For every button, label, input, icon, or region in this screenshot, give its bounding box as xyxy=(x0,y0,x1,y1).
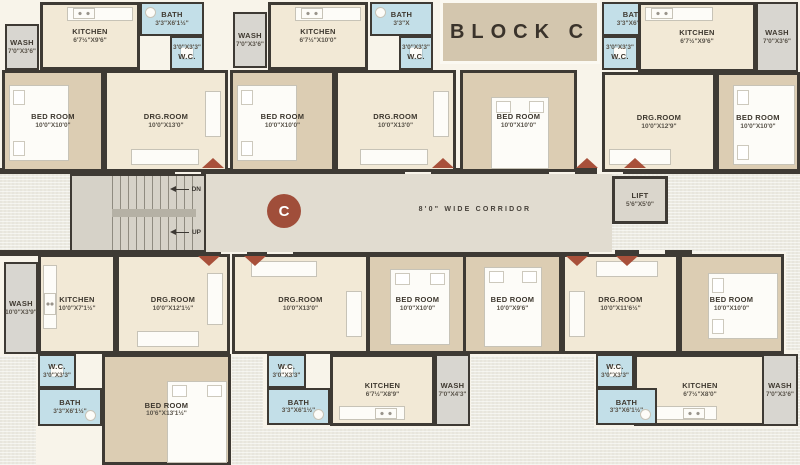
bed-icon xyxy=(491,97,549,169)
room-label: W.C. xyxy=(611,52,628,61)
room-label: W.C. xyxy=(178,52,195,61)
room-bedroom: BED ROOM10'0"X10'0" xyxy=(230,70,335,172)
room-dims: 10'0"X9'6" xyxy=(497,305,529,313)
room-drawing-room: DRG.ROOM10'0"X13'0" xyxy=(335,70,456,172)
room-label: BED ROOM xyxy=(491,295,535,304)
stair-down-indicator: DN xyxy=(172,186,201,193)
room-dims: 10'0"X12'9" xyxy=(641,123,676,131)
room-label: W.C. xyxy=(278,362,295,371)
left-arrow-icon xyxy=(172,232,189,233)
room-dims: 3'0"X3'3" xyxy=(173,44,201,52)
room-label: DRG.ROOM xyxy=(151,295,195,304)
door-marker-icon xyxy=(616,256,638,266)
up-label: UP xyxy=(192,229,201,236)
room-label: BED ROOM xyxy=(261,112,305,121)
room-dims: 3'3"X6'1½" xyxy=(282,407,315,415)
room-dims: 10'0"X13'0" xyxy=(283,305,318,313)
room-drawing-room: DRG.ROOM10'0"X13'0" xyxy=(104,70,228,172)
lift-room: LIFT5'6"X5'0" xyxy=(612,176,668,224)
room-label: BED ROOM xyxy=(736,113,780,122)
room-bath: BATH3'3"X6'1½" xyxy=(267,388,330,425)
room-label: KITCHEN xyxy=(679,28,714,37)
shower-icon xyxy=(375,7,386,18)
room-wc: W.C.3'0"X3'3" xyxy=(602,36,638,70)
room-dims: 10'0"X10'0" xyxy=(501,122,536,130)
sofa-icon xyxy=(433,91,449,137)
room-label: WASH xyxy=(768,381,792,390)
block-title-box: BLOCK C xyxy=(440,0,600,64)
room-label: W.C. xyxy=(48,362,65,371)
room-drawing-room: DRG.ROOM10'0"X11'6½" xyxy=(562,254,679,354)
stair-landing xyxy=(112,209,196,217)
room-label: BED ROOM xyxy=(145,401,189,410)
room-wash: WASH7'0"X3'6" xyxy=(233,12,267,68)
room-kitchen: KITCHEN6'7½"X9'6" xyxy=(638,2,756,72)
sofa-icon xyxy=(131,149,199,165)
room-dims: 3'0"X3'3" xyxy=(606,44,634,52)
left-arrow-icon xyxy=(172,189,189,190)
bed-icon xyxy=(167,381,227,463)
sofa-icon xyxy=(207,273,223,325)
down-label: DN xyxy=(192,186,201,193)
room-wc: W.C.3'0"X3'3" xyxy=(267,354,306,388)
sofa-icon xyxy=(137,331,199,347)
room-dims: 10'0"X10'0" xyxy=(400,305,435,313)
room-drawing-room: DRG.ROOM10'0"X13'0" xyxy=(232,254,369,354)
room-dims: 7'0"X4'3" xyxy=(438,391,466,399)
door-marker-icon xyxy=(566,256,588,266)
room-label: BED ROOM xyxy=(396,295,440,304)
room-bedroom: BED ROOM10'0"X10'0" xyxy=(460,70,577,172)
room-bedroom: BED ROOM10'0"X10'0" xyxy=(679,254,784,354)
room-label: DRG.ROOM xyxy=(144,112,188,121)
room-dims: 7'0"X3'6" xyxy=(236,41,264,49)
room-label: BATH xyxy=(161,10,182,19)
room-dims: 3'0"X3'3" xyxy=(43,372,71,380)
room-label: BED ROOM xyxy=(497,112,541,121)
room-bedroom: BED ROOM10'0"X9'6" xyxy=(463,254,562,354)
lift-dims: 5'6"X5'0" xyxy=(626,201,654,209)
stove-icon xyxy=(44,293,56,315)
block-title: BLOCK C xyxy=(450,21,590,44)
room-dims: 6'7½"X9'6" xyxy=(680,38,713,46)
room-dims: 10'0"X10'0" xyxy=(265,122,300,130)
room-dims: 3'0"X3'3" xyxy=(402,44,430,52)
room-wc: W.C.3'0"X3'3" xyxy=(170,36,204,70)
room-dims: 7'0"X3'6" xyxy=(763,38,791,46)
room-dims: 3'3"X6'1½" xyxy=(610,407,643,415)
lift-label: LIFT xyxy=(631,191,648,200)
sofa-icon xyxy=(569,291,585,337)
room-wc: W.C.3'0"X3'3" xyxy=(596,354,634,388)
room-label: BED ROOM xyxy=(710,295,754,304)
room-dims: 10'0"X10'0" xyxy=(35,122,70,130)
door-marker-icon xyxy=(576,158,598,168)
room-label: W.C. xyxy=(407,52,424,61)
room-dims: 10'0"X11'6½" xyxy=(600,305,640,313)
stove-icon xyxy=(375,408,397,419)
sofa-icon xyxy=(346,291,362,337)
room-dims: 3'3"X6'1½" xyxy=(53,408,86,416)
room-label: BATH xyxy=(59,398,80,407)
room-wc: W.C.3'0"X3'3" xyxy=(38,354,76,388)
room-bedroom: BED ROOM10'0"X10'0" xyxy=(716,72,800,172)
room-dims: 3'0"X3'3" xyxy=(272,372,300,380)
door-marker-icon xyxy=(244,256,266,266)
room-kitchen: KITCHEN6'7½"X9'6" xyxy=(40,2,140,70)
room-wc: W.C.3'0"X3'3" xyxy=(399,36,433,70)
room-wash: WASH7'0"X4'3" xyxy=(435,354,470,426)
room-kitchen: KITCHEN6'7½"X10'0" xyxy=(268,2,368,70)
room-kitchen: KITCHEN6'7½"X8'9" xyxy=(330,354,435,426)
room-bath: BATH3'3"X6'1½" xyxy=(596,388,657,425)
door-marker-icon xyxy=(432,158,454,168)
room-label: KITCHEN xyxy=(72,27,107,36)
room-label: DRG.ROOM xyxy=(637,113,681,122)
room-bath: BATH3'3"X6'1½" xyxy=(38,388,102,426)
room-drawing-room: DRG.ROOM10'0"X12'9" xyxy=(602,72,716,172)
stove-icon xyxy=(73,8,95,19)
floor-plan: DN UP C 8'0" WIDE CORRIDOR LIFT5'6"X5'0"… xyxy=(0,0,800,465)
room-bedroom: BED ROOM10'0"X10'0" xyxy=(367,254,468,354)
room-label: KITCHEN xyxy=(682,381,717,390)
room-label: BATH xyxy=(288,398,309,407)
room-dims: 10'0"X7'1½" xyxy=(58,305,95,313)
room-dims: 7'0"X3'6" xyxy=(8,48,36,56)
stove-icon xyxy=(301,8,323,19)
room-dims: 10'0"X10'0" xyxy=(714,305,749,313)
room-label: KITCHEN xyxy=(300,27,335,36)
stair-up-indicator: UP xyxy=(172,229,201,236)
room-wash: WASH7'0"X3'6" xyxy=(762,354,798,426)
room-dims: 6'7½"X8'0" xyxy=(683,391,716,399)
staircase: DN UP xyxy=(70,174,206,252)
room-label: WASH xyxy=(10,38,34,47)
room-label: WASH xyxy=(238,31,262,40)
room-label: WASH xyxy=(765,28,789,37)
room-wash: WASH10'0"X3'9" xyxy=(4,262,38,354)
room-bedroom: BED ROOM10'6"X13'1½" xyxy=(102,354,231,465)
room-label: WASH xyxy=(9,299,33,308)
room-dims: 3'0"X3'3" xyxy=(601,372,629,380)
block-badge: C xyxy=(267,194,301,228)
stove-icon xyxy=(683,408,705,419)
room-kitchen: KITCHEN10'0"X7'1½" xyxy=(38,254,116,354)
room-label: BED ROOM xyxy=(31,112,75,121)
room-label: KITCHEN xyxy=(365,381,400,390)
room-bath: BATH3'3"X xyxy=(370,2,433,36)
room-dims: 6'7½"X8'9" xyxy=(366,391,399,399)
room-label: KITCHEN xyxy=(59,295,94,304)
room-label: BATH xyxy=(616,398,637,407)
room-dims: 10'6"X13'1½" xyxy=(146,410,187,418)
sofa-icon xyxy=(205,91,221,137)
stove-icon xyxy=(651,8,673,19)
room-label: W.C. xyxy=(606,362,623,371)
door-marker-icon xyxy=(202,158,224,168)
room-label: WASH xyxy=(441,381,465,390)
room-dims: 7'0"X3'6" xyxy=(766,391,794,399)
room-dims: 10'0"X13'0" xyxy=(148,122,183,130)
room-wash: WASH7'0"X3'6" xyxy=(756,2,798,72)
room-label: DRG.ROOM xyxy=(373,112,417,121)
door-marker-icon xyxy=(624,158,646,168)
room-dims: 6'7½"X9'6" xyxy=(73,37,106,45)
room-label: DRG.ROOM xyxy=(598,295,642,304)
room-dims: 10'0"X12'1½" xyxy=(153,305,194,313)
room-wash: WASH7'0"X3'6" xyxy=(5,24,39,70)
room-dims: 10'0"X10'0" xyxy=(740,123,775,131)
room-dims: 3'3"X6'1½" xyxy=(155,20,188,28)
door-marker-icon xyxy=(198,256,220,266)
room-drawing-room: DRG.ROOM10'0"X12'1½" xyxy=(116,254,230,354)
corridor-label: 8'0" WIDE CORRIDOR xyxy=(380,206,570,213)
room-dims: 10'0"X3'9" xyxy=(5,309,37,317)
room-bath: BATH3'3"X6'1½" xyxy=(140,2,204,36)
room-dims: 10'0"X13'0" xyxy=(378,122,413,130)
sofa-icon xyxy=(360,149,428,165)
room-label: DRG.ROOM xyxy=(278,295,322,304)
room-dims: 3'3"X xyxy=(393,20,409,28)
room-bedroom: BED ROOM10'0"X10'0" xyxy=(2,70,104,172)
room-dims: 6'7½"X10'0" xyxy=(299,37,336,45)
room-label: BATH xyxy=(391,10,412,19)
